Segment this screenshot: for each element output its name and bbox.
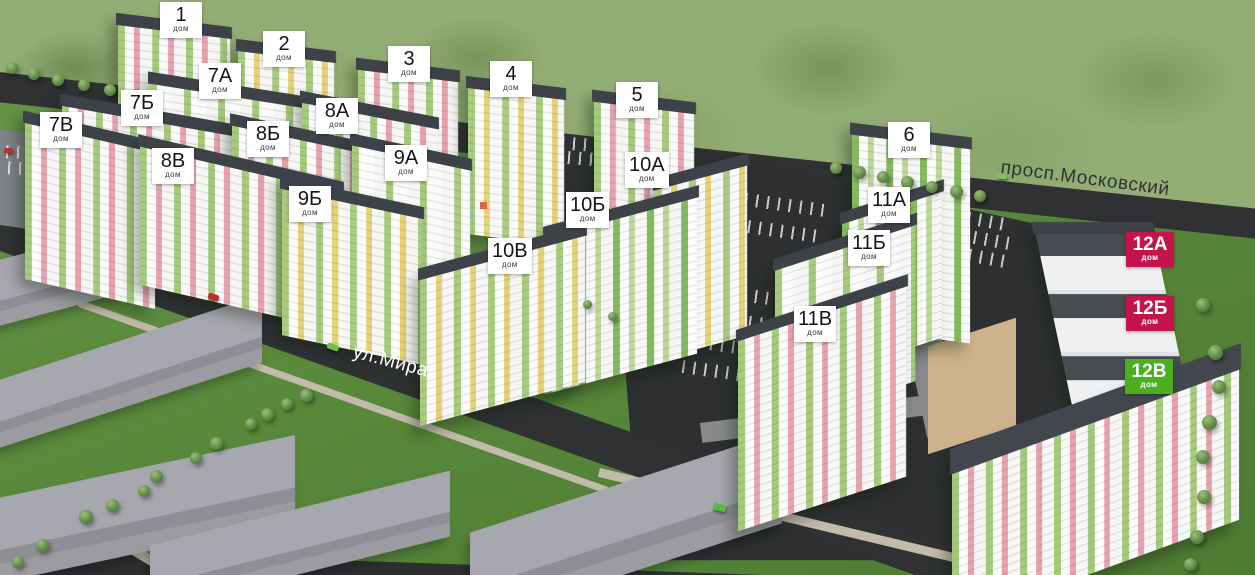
building-unit: дом <box>1142 318 1159 327</box>
building-unit: дом <box>861 253 877 262</box>
building-label-8b[interactable]: 8Бдом <box>247 121 289 157</box>
building-number: 7А <box>208 66 232 86</box>
building-label-9a[interactable]: 9Адом <box>385 145 427 181</box>
tree <box>79 510 93 524</box>
masterplan-scene: ул.Мира просп.Московский 1дом 2дом 3дом … <box>0 0 1255 575</box>
building-label-8v[interactable]: 8Вдом <box>152 148 194 184</box>
tree <box>1196 298 1210 312</box>
building-unit: дом <box>580 215 596 224</box>
building-number: 6 <box>903 125 914 145</box>
building-unit: дом <box>53 135 69 144</box>
building-label-12v[interactable]: 12Вдом <box>1125 359 1173 394</box>
building-label-7b[interactable]: 7Бдом <box>121 90 163 126</box>
tree <box>1184 558 1197 571</box>
building-unit: дом <box>302 209 318 218</box>
building-label-10v[interactable]: 10Вдом <box>488 238 532 274</box>
tree <box>830 162 842 174</box>
building-label-10a[interactable]: 10Адом <box>625 152 669 188</box>
building-number: 11В <box>798 309 832 329</box>
tree <box>974 190 986 202</box>
tree <box>1202 415 1217 430</box>
building-label-6[interactable]: 6дом <box>888 122 930 158</box>
tree <box>608 312 617 321</box>
building-number: 3 <box>403 49 414 69</box>
building-label-12b[interactable]: 12Бдом <box>1126 296 1174 331</box>
building-unit: дом <box>401 69 417 78</box>
building-number: 5 <box>631 85 642 105</box>
tree <box>261 408 274 421</box>
building-label-1[interactable]: 1дом <box>160 2 202 38</box>
tree <box>210 437 223 450</box>
building-number: 8Б <box>256 124 280 144</box>
building-number: 9Б <box>298 189 322 209</box>
building-number: 10В <box>492 241 528 261</box>
car <box>4 148 13 153</box>
building-unit: дом <box>173 25 189 34</box>
building-number: 8А <box>325 101 349 121</box>
building-label-12a[interactable]: 12Адом <box>1126 232 1174 267</box>
building-number: 8В <box>161 151 185 171</box>
building-label-11b[interactable]: 11Бдом <box>848 230 890 266</box>
building-label-8a[interactable]: 8Адом <box>316 98 358 134</box>
tree <box>926 181 938 193</box>
building-number: 7Б <box>130 93 154 113</box>
building-unit: дом <box>901 145 917 154</box>
building-number: 9А <box>394 148 418 168</box>
building-unit: дом <box>1141 381 1158 390</box>
building-label-11a[interactable]: 11Адом <box>868 187 910 223</box>
building-unit: дом <box>165 171 181 180</box>
building-number: 12А <box>1133 235 1168 254</box>
building-number: 10Б <box>570 195 605 215</box>
tree <box>52 74 64 86</box>
tree <box>853 166 866 179</box>
building-number: 1 <box>175 5 186 25</box>
tree <box>950 185 963 198</box>
tree <box>1208 345 1223 360</box>
building-unit: дом <box>639 175 655 184</box>
building-number: 10А <box>629 155 665 175</box>
tree <box>1196 450 1210 464</box>
tree <box>281 398 293 410</box>
tree <box>78 79 90 91</box>
building-unit: дом <box>134 113 150 122</box>
building-label-7v[interactable]: 7Вдом <box>40 112 82 148</box>
building-unit: дом <box>881 210 897 219</box>
building-unit: дом <box>503 84 519 93</box>
tree <box>190 452 202 464</box>
building-label-4[interactable]: 4дом <box>490 61 532 97</box>
building-unit: дом <box>1142 254 1159 263</box>
building-label-11v[interactable]: 11Вдом <box>794 306 836 342</box>
tree <box>150 470 163 483</box>
tree <box>1197 490 1211 504</box>
building-number: 11А <box>872 190 906 210</box>
building-unit: дом <box>807 329 823 338</box>
building-label-5[interactable]: 5дом <box>616 82 658 118</box>
tree <box>138 485 150 497</box>
building-number: 2 <box>278 34 289 54</box>
building-4 <box>468 86 564 246</box>
building-unit: дом <box>212 86 228 95</box>
building-unit: дом <box>276 54 292 63</box>
building-label-10b[interactable]: 10Бдом <box>566 192 609 228</box>
building-unit: дом <box>398 168 414 177</box>
tree <box>300 389 313 402</box>
building-unit: дом <box>629 105 645 114</box>
building-unit: дом <box>502 261 518 270</box>
building-unit: дом <box>329 121 345 130</box>
building-number: 11Б <box>852 233 886 253</box>
tree <box>104 84 116 96</box>
building-label-2[interactable]: 2дом <box>263 31 305 67</box>
tree <box>1212 380 1226 394</box>
building-label-9b[interactable]: 9Бдом <box>289 186 331 222</box>
tree <box>1190 530 1204 544</box>
tree <box>6 62 18 74</box>
building-number: 7В <box>49 115 73 135</box>
playground-equipment <box>480 202 487 209</box>
tree <box>28 68 40 80</box>
tree <box>245 418 257 430</box>
tree <box>106 499 119 512</box>
building-number: 12Б <box>1133 299 1168 318</box>
tree <box>583 300 592 309</box>
tree <box>36 539 49 552</box>
tree <box>877 171 889 183</box>
building-label-7a[interactable]: 7Адом <box>199 63 241 99</box>
building-label-3[interactable]: 3дом <box>388 46 430 82</box>
building-7v <box>25 121 155 309</box>
building-unit: дом <box>260 144 276 153</box>
building-number: 4 <box>505 64 516 84</box>
building-number: 12В <box>1132 362 1167 381</box>
tree <box>12 556 24 568</box>
